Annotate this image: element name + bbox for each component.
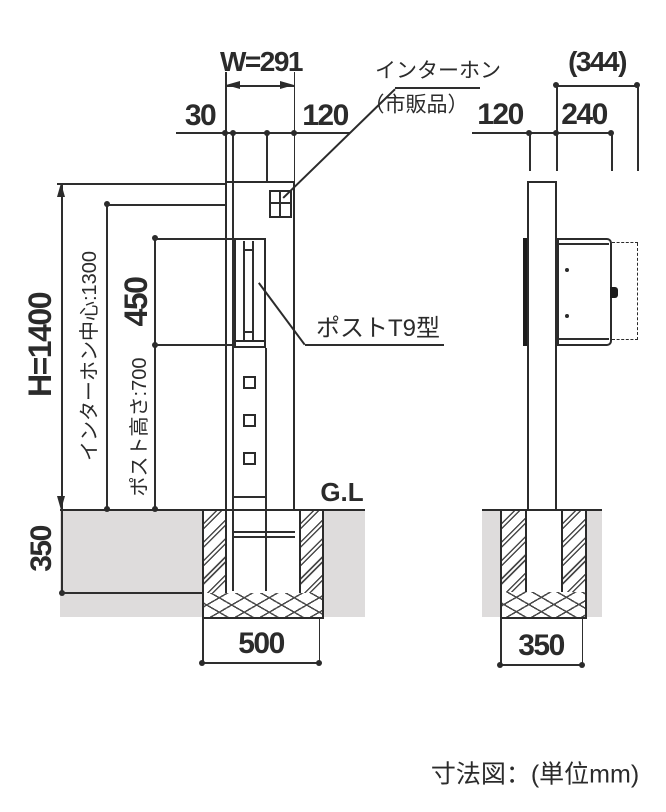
mailbox-bottom-line: [559, 338, 609, 340]
ext-line: [106, 204, 226, 206]
ext-line: [232, 132, 234, 181]
gravel-side: [500, 592, 587, 619]
post-slot-left: [243, 241, 245, 342]
dim-line-350-left: [61, 511, 63, 593]
dim-line-1300: [106, 204, 108, 510]
intercom-label: インターホン: [375, 61, 501, 82]
dim-label-350-side: 350: [518, 631, 564, 661]
lower-panel-bottom: [234, 496, 267, 498]
dim-label-344: (344): [568, 48, 626, 76]
intercom-cross-v: [279, 192, 281, 216]
ext-line: [154, 238, 234, 240]
ext-line: [500, 618, 502, 667]
underground-band-2: [233, 536, 295, 538]
post-box-bottom-band: [234, 340, 266, 342]
pole-front-top: [225, 181, 295, 183]
mailbox-screw-1: [565, 268, 569, 272]
gravel-front: [202, 593, 324, 619]
intercom-note-label: （市販品）: [364, 95, 469, 116]
ground-level-label: G.L: [320, 479, 363, 505]
dim-label-30: 30: [185, 101, 215, 131]
ext-line: [61, 592, 203, 594]
door-swing-dashed-right: [637, 243, 638, 340]
footing-front: [202, 511, 324, 595]
post-slot-bottom-divider: [243, 331, 253, 333]
dim-line-500: [202, 662, 320, 664]
drawing-caption: 寸法図：(単位mm): [431, 763, 639, 788]
dimension-drawing: W=291 30 120 インターホン （市販品） (344) 120 240 …: [0, 0, 666, 812]
dim-label-350-left: 350: [27, 526, 57, 572]
dim-line-h1400: [61, 183, 63, 510]
ext-line: [529, 132, 531, 171]
dim-line-120-240: [472, 132, 613, 134]
dim-label-intercom-center-1300: インターホン中心:1300: [80, 251, 100, 461]
dim-line-350-side: [500, 664, 583, 666]
dim-label-120-side: 120: [477, 100, 523, 130]
dim-dot: [230, 130, 236, 136]
dim-dot: [291, 130, 297, 136]
pole-front-right: [293, 181, 295, 511]
dim-dot: [316, 660, 322, 666]
pole-side-left: [527, 181, 529, 511]
ext-line: [266, 132, 268, 181]
arrowhead-left: [226, 81, 240, 89]
dim-dot: [104, 506, 110, 512]
door-swing-dashed-bottom: [612, 339, 638, 340]
pole-front-left: [225, 181, 227, 511]
mailbox-screw-2: [565, 314, 569, 318]
ext-line: [154, 344, 234, 346]
dim-label-500: 500: [238, 629, 284, 659]
ext-line: [319, 618, 321, 665]
dim-line-450-700: [154, 238, 156, 510]
dim-dot: [264, 130, 270, 136]
dim-dot: [152, 506, 158, 512]
dim-label-120-front: 120: [302, 101, 348, 131]
post-leader-underline: [305, 344, 444, 346]
ext-line: [556, 85, 558, 171]
mailbox-side: [557, 238, 612, 346]
underground-band-1: [233, 531, 295, 533]
panel-square-1: [243, 376, 256, 389]
mailbox-knob: [610, 287, 618, 298]
arrowhead-up: [57, 183, 65, 197]
door-swing-dashed-top: [612, 242, 638, 243]
dim-dot: [579, 662, 585, 668]
footing-hatch-left2: [502, 511, 527, 592]
post-slot-right: [252, 241, 254, 342]
dim-dot: [222, 130, 228, 136]
pole-side-top: [527, 181, 557, 183]
dim-label-450: 450: [120, 278, 152, 327]
ext-line: [202, 618, 204, 665]
dim-label-240-side: 240: [561, 100, 607, 130]
post-model-label: ポストT9型: [316, 317, 440, 341]
mailbox-top-line: [559, 243, 609, 245]
dim-line-30-120: [176, 132, 350, 134]
arrowhead-right: [280, 81, 294, 89]
dim-label-h1400: H=1400: [24, 293, 56, 397]
ext-line: [637, 85, 639, 171]
intercom-box: [269, 190, 292, 218]
pole-front-inner-line2: [265, 348, 267, 591]
ext-line: [57, 183, 226, 185]
dim-label-w291: W=291: [220, 48, 302, 76]
ground-line-side: [482, 509, 602, 511]
ext-line: [582, 618, 584, 667]
ext-line: [611, 132, 613, 171]
footing-hatch-right: [299, 511, 322, 593]
intercom-cross-h: [271, 202, 290, 204]
intercom-leader-underline: [395, 87, 480, 89]
footing-hatch-left: [204, 511, 227, 593]
dim-line-344: [556, 85, 638, 87]
dim-dot: [497, 662, 503, 668]
footing-hatch-right2: [561, 511, 585, 592]
footing-side: [500, 511, 587, 594]
dim-label-post-height-700: ポスト高さ:700: [130, 358, 150, 497]
post-slot-top-divider: [243, 249, 253, 251]
panel-square-3: [243, 452, 256, 465]
panel-square-2: [243, 414, 256, 427]
pole-side-right: [555, 181, 557, 511]
arrowhead-down: [57, 496, 65, 510]
bracket-strip: [523, 238, 527, 346]
dim-dot: [199, 660, 205, 666]
